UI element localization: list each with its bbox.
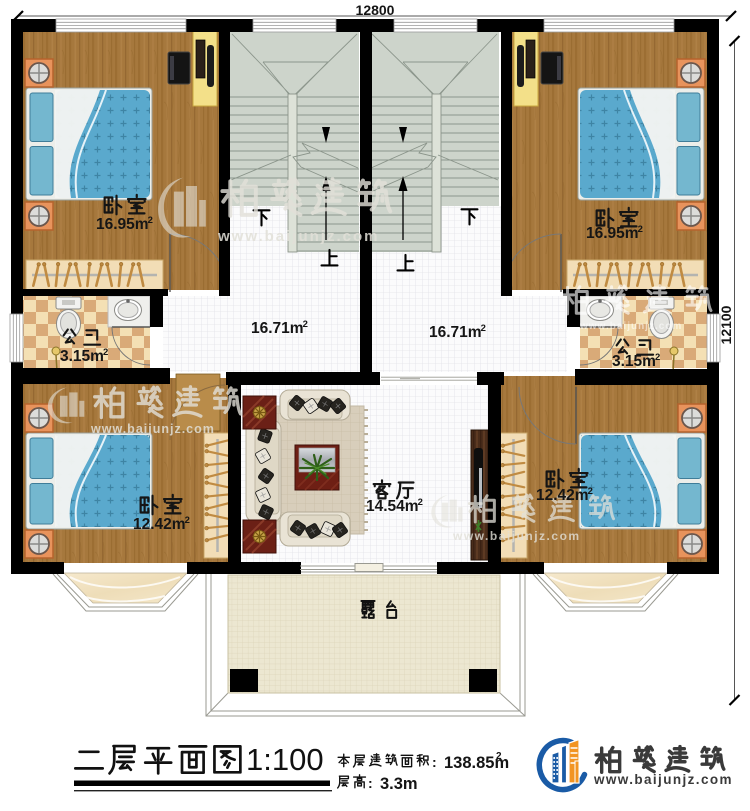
svg-text:3.15m: 3.15m: [60, 348, 104, 365]
svg-text:2: 2: [638, 224, 643, 235]
svg-text:2: 2: [588, 486, 593, 497]
svg-text:2: 2: [103, 347, 108, 358]
svg-text:2: 2: [185, 515, 190, 526]
svg-text:2: 2: [303, 319, 308, 330]
svg-text:12800: 12800: [356, 2, 395, 18]
svg-text:16.71m: 16.71m: [251, 320, 304, 337]
svg-text:16.95m: 16.95m: [586, 225, 639, 242]
svg-text::: :: [432, 754, 437, 770]
svg-text:14.54m: 14.54m: [366, 498, 419, 515]
svg-text:1:100: 1:100: [246, 742, 324, 777]
svg-text:2: 2: [481, 323, 486, 334]
svg-text:12.42m: 12.42m: [536, 487, 589, 504]
svg-text:3.15m: 3.15m: [612, 353, 656, 370]
svg-text:12.42m: 12.42m: [133, 516, 186, 533]
svg-text:3.3m: 3.3m: [380, 775, 418, 793]
svg-text:2: 2: [418, 497, 423, 508]
svg-text:www.baijunjz.com: www.baijunjz.com: [217, 228, 379, 245]
svg-text:16.95m: 16.95m: [96, 216, 149, 233]
svg-text:2: 2: [655, 352, 660, 363]
svg-text:2: 2: [148, 215, 153, 226]
svg-text:2: 2: [496, 751, 502, 762]
svg-text:12100: 12100: [718, 305, 734, 344]
svg-text:www.baijunjz.com: www.baijunjz.com: [90, 422, 215, 436]
svg-text::: :: [368, 775, 373, 791]
svg-text:16.71m: 16.71m: [429, 324, 482, 341]
svg-text:www.baijunjz.com: www.baijunjz.com: [579, 321, 682, 332]
svg-text:www.baijunjz.com: www.baijunjz.com: [452, 529, 581, 543]
svg-text:www.baijunjz.com: www.baijunjz.com: [593, 772, 733, 787]
